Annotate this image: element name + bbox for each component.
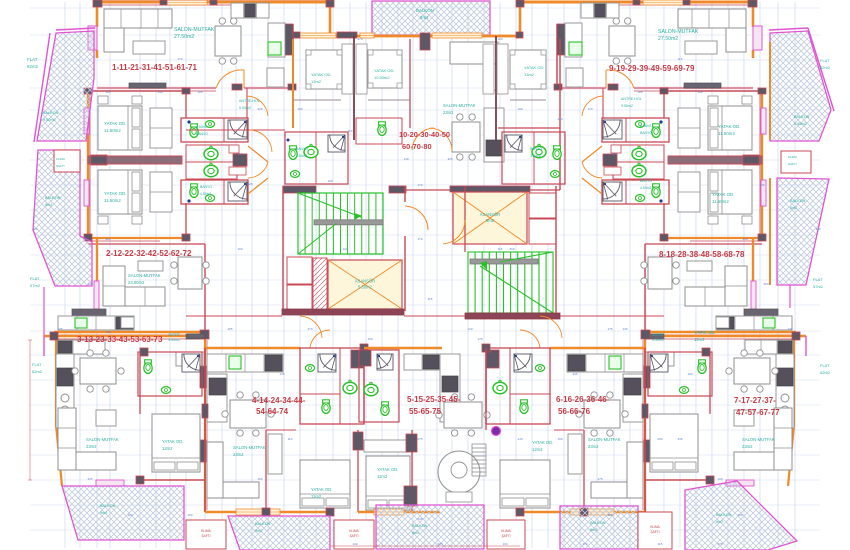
svg-text:145: 145 bbox=[697, 330, 702, 334]
svg-text:150: 150 bbox=[187, 513, 192, 517]
svg-text:YATAK OD.: YATAK OD. bbox=[162, 439, 183, 444]
svg-text:170: 170 bbox=[417, 183, 422, 187]
svg-text:92m2: 92m2 bbox=[27, 64, 39, 69]
svg-text:23m2: 23m2 bbox=[233, 452, 244, 457]
svg-text:12m2: 12m2 bbox=[162, 446, 173, 451]
svg-text:325: 325 bbox=[247, 182, 252, 186]
svg-text:BANYO: BANYO bbox=[640, 179, 652, 183]
svg-text:YATAK OD.: YATAK OD. bbox=[377, 467, 398, 472]
svg-text:YATAK OD.: YATAK OD. bbox=[532, 440, 553, 445]
svg-text:100: 100 bbox=[517, 107, 522, 111]
svg-text:335: 335 bbox=[87, 477, 92, 481]
svg-text:3-13-23-33-43-53-63-73: 3-13-23-33-43-53-63-73 bbox=[77, 335, 163, 344]
svg-text:8-18-28-38-48-58-68-78: 8-18-28-38-48-58-68-78 bbox=[659, 250, 745, 259]
svg-text:BALKON: BALKON bbox=[716, 513, 732, 517]
svg-text:105: 105 bbox=[197, 90, 202, 94]
svg-text:7-17-27-37-: 7-17-27-37- bbox=[734, 396, 776, 405]
svg-text:6m2: 6m2 bbox=[486, 218, 495, 223]
svg-text:3.50m2: 3.50m2 bbox=[530, 154, 541, 158]
svg-text:YATAK OD.: YATAK OD. bbox=[718, 124, 740, 129]
svg-text:BALKON: BALKON bbox=[794, 115, 810, 119]
svg-text:47-57-67-77: 47-57-67-77 bbox=[736, 408, 780, 417]
svg-text:11.50m2: 11.50m2 bbox=[718, 131, 735, 136]
svg-text:BANYO: BANYO bbox=[640, 131, 652, 135]
svg-text:ŞAFTI: ŞAFTI bbox=[788, 162, 797, 166]
svg-text:12m2: 12m2 bbox=[532, 447, 543, 452]
svg-text:370: 370 bbox=[612, 152, 617, 156]
svg-text:FLAT: FLAT bbox=[820, 363, 830, 368]
svg-text:KLIMA: KLIMA bbox=[650, 525, 660, 529]
svg-text:5.50m2: 5.50m2 bbox=[358, 285, 373, 290]
svg-text:105: 105 bbox=[57, 327, 62, 331]
svg-text:130: 130 bbox=[105, 330, 110, 334]
svg-text:57m2: 57m2 bbox=[813, 284, 824, 289]
svg-text:ANTRE-HOL: ANTRE-HOL bbox=[621, 97, 642, 101]
svg-text:FLAT: FLAT bbox=[32, 362, 42, 367]
svg-text:100: 100 bbox=[502, 542, 507, 546]
svg-text:145: 145 bbox=[417, 517, 422, 521]
svg-text:KLIMA: KLIMA bbox=[201, 529, 211, 533]
svg-text:BALKON: BALKON bbox=[590, 521, 606, 525]
svg-text:120: 120 bbox=[467, 327, 472, 331]
svg-text:BALKON: BALKON bbox=[255, 522, 271, 526]
svg-text:6m2: 6m2 bbox=[716, 520, 723, 524]
svg-text:370: 370 bbox=[307, 327, 312, 331]
svg-text:ANTRE: ANTRE bbox=[652, 333, 665, 337]
svg-text:115: 115 bbox=[658, 542, 663, 546]
svg-text:YATAK OD.: YATAK OD. bbox=[104, 121, 126, 126]
svg-text:57m2: 57m2 bbox=[30, 283, 41, 288]
svg-text:ŞAFTI: ŞAFTI bbox=[56, 164, 65, 168]
svg-text:5-15-25-35-45-: 5-15-25-35-45- bbox=[407, 395, 461, 404]
svg-text:115: 115 bbox=[428, 297, 433, 301]
svg-text:160: 160 bbox=[237, 247, 242, 251]
svg-text:115: 115 bbox=[678, 57, 683, 61]
svg-text:62m2: 62m2 bbox=[32, 369, 43, 374]
svg-text:9.50m2: 9.50m2 bbox=[621, 104, 633, 108]
svg-text:120: 120 bbox=[342, 247, 347, 251]
svg-text:SALON-MUTFAK: SALON-MUTFAK bbox=[742, 437, 775, 442]
svg-text:4.50m2: 4.50m2 bbox=[196, 125, 207, 129]
svg-text:110: 110 bbox=[128, 513, 133, 517]
svg-text:YATAK OD.: YATAK OD. bbox=[374, 68, 394, 73]
svg-text:82m2: 82m2 bbox=[820, 65, 831, 70]
svg-text:BALKON: BALKON bbox=[416, 8, 434, 13]
svg-text:140: 140 bbox=[517, 437, 522, 441]
svg-text:ANTRE-HOL: ANTRE-HOL bbox=[239, 99, 260, 103]
svg-text:13m2: 13m2 bbox=[524, 72, 535, 77]
svg-text:23m2: 23m2 bbox=[86, 444, 97, 449]
svg-text:115: 115 bbox=[498, 247, 503, 251]
svg-text:YATAK OD.: YATAK OD. bbox=[311, 72, 331, 77]
svg-text:23m2: 23m2 bbox=[742, 444, 753, 449]
svg-text:54-64-74: 54-64-74 bbox=[256, 407, 289, 416]
svg-text:145: 145 bbox=[759, 183, 764, 187]
svg-text:11m2: 11m2 bbox=[311, 494, 322, 499]
svg-text:10-20-30-40-50: 10-20-30-40-50 bbox=[399, 130, 450, 139]
svg-text:140: 140 bbox=[815, 227, 820, 231]
svg-text:56-66-76: 56-66-76 bbox=[558, 407, 591, 416]
svg-text:4-14-24-34-44-: 4-14-24-34-44- bbox=[252, 396, 306, 405]
svg-text:BANYO: BANYO bbox=[296, 147, 308, 151]
svg-text:8m2: 8m2 bbox=[412, 531, 419, 535]
svg-text:170: 170 bbox=[417, 237, 422, 241]
svg-text:100: 100 bbox=[717, 477, 722, 481]
svg-text:FLAT: FLAT bbox=[27, 57, 38, 62]
svg-text:BALKON: BALKON bbox=[100, 504, 116, 508]
svg-text:3.50m2: 3.50m2 bbox=[296, 154, 307, 158]
svg-text:KLIMA: KLIMA bbox=[56, 157, 65, 161]
svg-text:3.50m2: 3.50m2 bbox=[168, 338, 180, 342]
svg-text:100: 100 bbox=[742, 237, 747, 241]
svg-text:FLAT: FLAT bbox=[30, 276, 40, 281]
svg-text:BALKON: BALKON bbox=[790, 199, 806, 203]
svg-text:9.50m2: 9.50m2 bbox=[239, 106, 251, 110]
svg-text:260: 260 bbox=[557, 117, 562, 121]
svg-text:SALON-MUTFAK: SALON-MUTFAK bbox=[443, 103, 476, 108]
svg-text:YATAK OD.: YATAK OD. bbox=[712, 192, 734, 197]
svg-text:ANTRE: ANTRE bbox=[168, 333, 181, 337]
svg-text:KLIMA: KLIMA bbox=[349, 529, 359, 533]
svg-text:335: 335 bbox=[572, 372, 577, 376]
svg-text:1-11-21-31-41-51-61-71: 1-11-21-31-41-51-61-71 bbox=[112, 63, 197, 72]
svg-text:8m2: 8m2 bbox=[420, 15, 429, 20]
svg-text:SALON-MUTFAK: SALON-MUTFAK bbox=[86, 437, 119, 442]
svg-text:BANYO: BANYO bbox=[200, 185, 212, 189]
svg-text:370: 370 bbox=[357, 37, 362, 41]
svg-text:130: 130 bbox=[787, 327, 792, 331]
svg-text:110: 110 bbox=[348, 129, 353, 133]
svg-text:9m2: 9m2 bbox=[255, 529, 262, 533]
svg-text:SALON-MUTFAK: SALON-MUTFAK bbox=[233, 445, 266, 450]
svg-text:150: 150 bbox=[737, 513, 742, 517]
svg-text:60-70-80: 60-70-80 bbox=[402, 142, 432, 151]
svg-text:160: 160 bbox=[367, 337, 372, 341]
svg-text:4.50m2: 4.50m2 bbox=[640, 124, 651, 128]
svg-text:13m2: 13m2 bbox=[311, 79, 322, 84]
svg-text:175: 175 bbox=[607, 327, 612, 331]
svg-text:2-12-22-32-42-52-62-72: 2-12-22-32-42-52-62-72 bbox=[106, 249, 192, 258]
svg-text:130: 130 bbox=[697, 90, 702, 94]
svg-text:9.50m2: 9.50m2 bbox=[43, 118, 56, 122]
svg-text:KLIMA: KLIMA bbox=[501, 529, 511, 533]
svg-text:9m2: 9m2 bbox=[100, 511, 107, 515]
svg-text:6m2: 6m2 bbox=[790, 206, 797, 210]
svg-text:110: 110 bbox=[106, 90, 111, 94]
svg-text:ŞAFTI: ŞAFTI bbox=[650, 530, 659, 534]
svg-text:8m2: 8m2 bbox=[590, 528, 597, 532]
svg-text:ŞAFTI: ŞAFTI bbox=[349, 534, 358, 538]
svg-text:YATAK OD.: YATAK OD. bbox=[311, 487, 332, 492]
svg-text:115: 115 bbox=[238, 152, 243, 156]
svg-text:105: 105 bbox=[227, 327, 232, 331]
svg-text:140: 140 bbox=[403, 157, 408, 161]
svg-text:27.50m2: 27.50m2 bbox=[174, 34, 194, 40]
svg-text:160: 160 bbox=[257, 477, 262, 481]
svg-text:145: 145 bbox=[279, 372, 284, 376]
svg-text:175: 175 bbox=[477, 337, 482, 341]
svg-text:140: 140 bbox=[352, 542, 357, 546]
svg-text:ŞAFTI: ŞAFTI bbox=[501, 534, 510, 538]
svg-text:130: 130 bbox=[622, 327, 627, 331]
svg-text:23m2: 23m2 bbox=[588, 444, 599, 449]
svg-text:110: 110 bbox=[33, 227, 38, 231]
svg-text:BANYO: BANYO bbox=[530, 147, 542, 151]
svg-text:BALKON: BALKON bbox=[412, 524, 428, 528]
svg-text:325: 325 bbox=[447, 157, 452, 161]
svg-text:260: 260 bbox=[509, 247, 514, 251]
svg-text:SALON-MUTFAK: SALON-MUTFAK bbox=[658, 29, 699, 35]
svg-text:120: 120 bbox=[87, 282, 92, 286]
svg-text:10.50m2: 10.50m2 bbox=[374, 75, 390, 80]
svg-text:62m2: 62m2 bbox=[820, 370, 831, 375]
svg-text:11.50m2: 11.50m2 bbox=[104, 198, 121, 203]
svg-text:BALKON: BALKON bbox=[43, 111, 59, 115]
svg-text:100: 100 bbox=[327, 179, 332, 183]
svg-text:FLAT: FLAT bbox=[820, 58, 830, 63]
svg-text:11.50m2: 11.50m2 bbox=[712, 199, 729, 204]
svg-text:150: 150 bbox=[297, 107, 302, 111]
svg-text:BALKON: BALKON bbox=[45, 196, 61, 200]
svg-text:260: 260 bbox=[763, 282, 768, 286]
svg-text:335: 335 bbox=[257, 107, 262, 111]
svg-text:12m2: 12m2 bbox=[694, 337, 705, 342]
svg-text:11.50m2: 11.50m2 bbox=[104, 128, 121, 133]
svg-text:SALON-MUTFAK: SALON-MUTFAK bbox=[588, 437, 621, 442]
svg-text:ASANSÖR: ASANSÖR bbox=[480, 212, 500, 217]
svg-text:YATAK OD.: YATAK OD. bbox=[104, 191, 126, 196]
svg-text:5.50m2: 5.50m2 bbox=[794, 122, 807, 126]
svg-text:SALON-MUTFAK: SALON-MUTFAK bbox=[128, 273, 161, 278]
svg-text:370: 370 bbox=[717, 542, 722, 546]
svg-text:SALON-MUTFAK: SALON-MUTFAK bbox=[174, 27, 215, 33]
svg-text:325: 325 bbox=[437, 542, 442, 546]
svg-text:YATAK OD.: YATAK OD. bbox=[524, 65, 544, 70]
svg-text:175: 175 bbox=[417, 437, 422, 441]
svg-text:KLIMA: KLIMA bbox=[788, 155, 797, 159]
svg-text:3.50m2: 3.50m2 bbox=[652, 338, 664, 342]
svg-text:110: 110 bbox=[288, 437, 293, 441]
svg-text:120: 120 bbox=[497, 37, 502, 41]
svg-text:170: 170 bbox=[177, 57, 182, 61]
svg-text:335: 335 bbox=[677, 437, 682, 441]
svg-text:325: 325 bbox=[105, 237, 110, 241]
svg-text:27.50m2: 27.50m2 bbox=[658, 36, 678, 42]
svg-text:ŞAFTI: ŞAFTI bbox=[201, 534, 210, 538]
svg-text:23m2: 23m2 bbox=[443, 110, 454, 115]
svg-text:160: 160 bbox=[557, 437, 562, 441]
svg-text:23.00m2: 23.00m2 bbox=[128, 280, 145, 285]
svg-text:9-19-29-39-49-59-69-79: 9-19-29-39-49-59-69-79 bbox=[609, 64, 695, 73]
svg-text:8m2: 8m2 bbox=[45, 203, 52, 207]
svg-text:BANYO: BANYO bbox=[196, 132, 208, 136]
svg-text:6-16-26-36-46-: 6-16-26-36-46- bbox=[556, 395, 610, 404]
svg-text:ASANSÖR: ASANSÖR bbox=[355, 279, 375, 284]
svg-text:175: 175 bbox=[597, 477, 602, 481]
svg-text:260: 260 bbox=[657, 437, 662, 441]
svg-text:150: 150 bbox=[687, 372, 692, 376]
svg-text:55-65-75: 55-65-75 bbox=[409, 407, 442, 416]
svg-text:325: 325 bbox=[607, 513, 612, 517]
svg-text:4.50m2: 4.50m2 bbox=[200, 192, 211, 196]
svg-text:170: 170 bbox=[587, 107, 592, 111]
svg-text:FLAT: FLAT bbox=[813, 277, 823, 282]
svg-text:11m2: 11m2 bbox=[377, 474, 388, 479]
svg-text:105: 105 bbox=[637, 90, 642, 94]
svg-text:140: 140 bbox=[157, 90, 162, 94]
svg-text:4.50m2: 4.50m2 bbox=[640, 186, 651, 190]
svg-text:170: 170 bbox=[582, 542, 587, 546]
